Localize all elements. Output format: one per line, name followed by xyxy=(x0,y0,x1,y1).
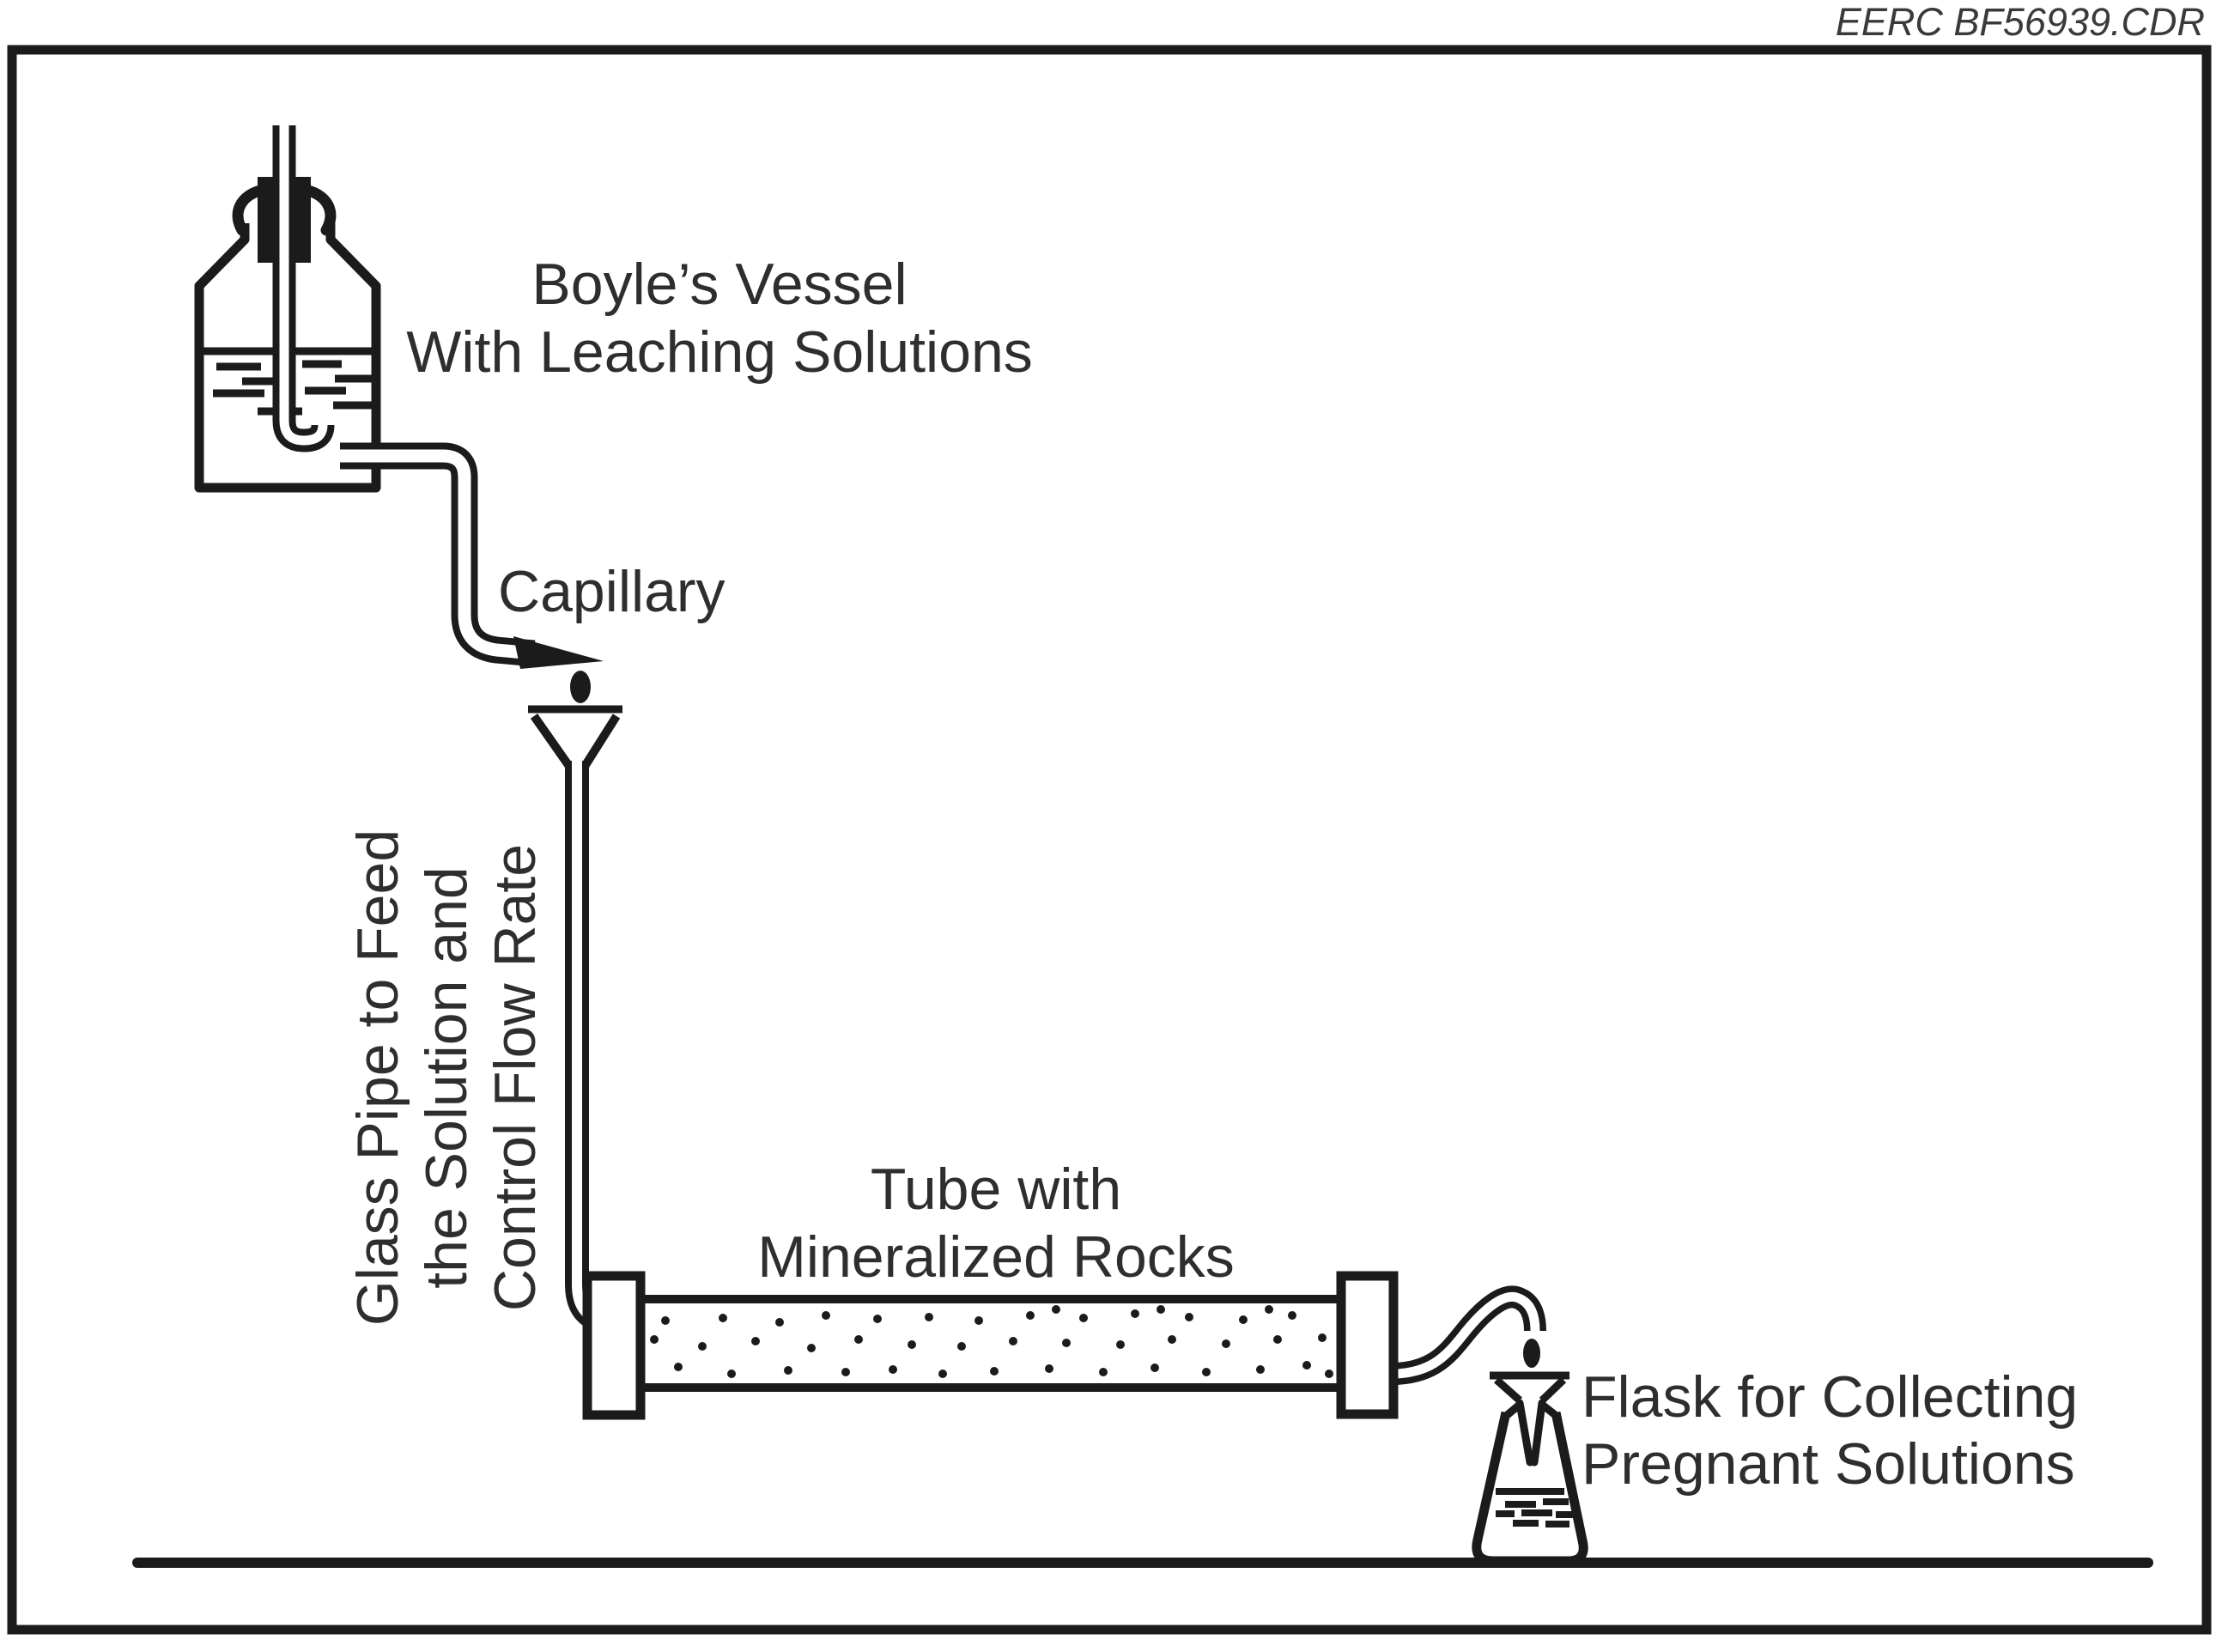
glass-pipe-label-line1: Glass Pipe to Feed xyxy=(343,794,412,1361)
rock-dot xyxy=(1079,1314,1088,1322)
rock-dot xyxy=(1185,1313,1193,1321)
rock-dot xyxy=(1099,1368,1108,1376)
rock-dot xyxy=(807,1344,816,1352)
rock-dot xyxy=(1239,1315,1248,1324)
rock-tube-label-line2: Mineralized Rocks xyxy=(695,1224,1296,1291)
glass-pipe-label-line2: the Solution and xyxy=(412,794,481,1361)
rock-dot xyxy=(751,1337,760,1345)
rock-dot xyxy=(1273,1335,1282,1344)
rock-dot xyxy=(1288,1311,1296,1320)
rock-dot xyxy=(784,1366,792,1375)
vessel-label-line2: With Leaching Solutions xyxy=(393,319,1046,386)
rock-dot xyxy=(1131,1309,1139,1318)
flask-funnel-cone-right xyxy=(1542,1380,1563,1400)
rock-dot xyxy=(661,1316,670,1325)
rock-dot xyxy=(1168,1335,1176,1344)
glass-pipe-label-line3: Control Flow Rate xyxy=(481,794,549,1361)
rock-dots xyxy=(650,1305,1333,1378)
rock-dot xyxy=(1202,1368,1211,1376)
glass-pipe-outer xyxy=(577,761,635,1322)
rock-dot xyxy=(650,1335,659,1344)
rock-dot xyxy=(1325,1370,1333,1378)
rock-dot xyxy=(1062,1339,1071,1347)
rock-dot xyxy=(775,1318,784,1327)
rock-dot xyxy=(1157,1305,1165,1314)
rock-dot xyxy=(1045,1364,1053,1373)
rock-dot xyxy=(727,1370,736,1378)
rock-dot xyxy=(889,1365,897,1374)
droplet-top xyxy=(570,671,591,703)
rock-dot xyxy=(925,1313,933,1321)
rock-dot xyxy=(1026,1311,1035,1320)
funnel-cone-left xyxy=(534,716,568,765)
rock-dot xyxy=(990,1367,999,1376)
rock-dot xyxy=(1265,1305,1273,1314)
rock-dot xyxy=(1009,1337,1017,1345)
rock-dot xyxy=(938,1370,947,1378)
rock-dot xyxy=(1302,1361,1311,1370)
rock-dot xyxy=(841,1368,850,1376)
rock-dot xyxy=(957,1342,966,1351)
flask-label-line2: Pregnant Solutions xyxy=(1582,1430,2078,1497)
capillary-tip xyxy=(513,636,604,669)
rock-dot xyxy=(719,1314,727,1322)
rock-dot xyxy=(674,1363,683,1371)
rock-tube-label: Tube with Mineralized Rocks xyxy=(695,1156,1296,1291)
collection-flask xyxy=(1477,1376,1583,1561)
rock-dot xyxy=(1150,1364,1159,1372)
flask-label: Flask for Collecting Pregnant Solutions xyxy=(1582,1364,2078,1497)
rock-dot xyxy=(1052,1305,1060,1314)
rock-dot xyxy=(1222,1339,1230,1348)
funnel-cone-right xyxy=(586,716,616,765)
rock-dot xyxy=(1116,1340,1125,1349)
rock-tube-right-cap xyxy=(1341,1276,1393,1414)
flask-label-line1: Flask for Collecting xyxy=(1582,1364,2078,1430)
rock-dot xyxy=(854,1335,863,1344)
rock-dot xyxy=(822,1311,830,1320)
rock-dot xyxy=(908,1340,916,1349)
flask-funnel-cone-left xyxy=(1497,1380,1520,1400)
droplet-bottom xyxy=(1523,1339,1540,1368)
rock-dot xyxy=(1256,1365,1265,1374)
vessel-label-line1: Boyle’s Vessel xyxy=(393,251,1046,319)
rock-tube-left-cap xyxy=(587,1276,641,1415)
rock-dot xyxy=(1318,1333,1327,1342)
rock-dot xyxy=(698,1342,707,1351)
glass-pipe-label: Glass Pipe to Feed the Solution and Cont… xyxy=(343,794,549,1361)
flask-body xyxy=(1477,1412,1583,1561)
rock-tube-label-line1: Tube with xyxy=(695,1156,1296,1224)
mineralized-rock-tube xyxy=(587,1276,1540,1415)
boyles-vessel xyxy=(199,125,378,488)
rock-dot xyxy=(974,1316,983,1325)
vessel-label: Boyle’s Vessel With Leaching Solutions xyxy=(393,251,1046,386)
capillary-label: Capillary xyxy=(498,558,726,626)
rock-dot xyxy=(873,1315,882,1323)
file-watermark: EERC BF56939.CDR xyxy=(1460,0,2205,45)
